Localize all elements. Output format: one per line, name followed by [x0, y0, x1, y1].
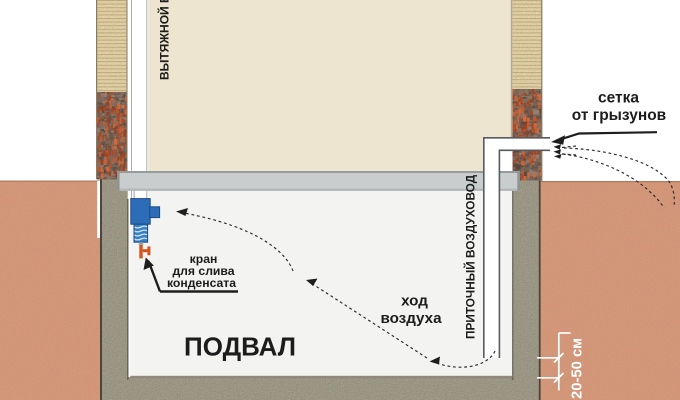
- svg-text:ПОДВАЛ: ПОДВАЛ: [184, 332, 296, 362]
- svg-text:сетка: сетка: [598, 90, 639, 107]
- svg-text:20-50 см: 20-50 см: [570, 338, 586, 399]
- svg-text:воздуха: воздуха: [380, 310, 442, 327]
- svg-text:ход: ход: [401, 293, 428, 310]
- svg-text:ВЫТЯЖНОЙ В: ВЫТЯЖНОЙ В: [157, 0, 172, 80]
- svg-text:ПРИТОЧНЫЙ ВОЗДУХОВОД: ПРИТОЧНЫЙ ВОЗДУХОВОД: [464, 174, 478, 339]
- svg-text:конденсата: конденсата: [167, 276, 236, 290]
- svg-text:от грызунов: от грызунов: [572, 107, 666, 124]
